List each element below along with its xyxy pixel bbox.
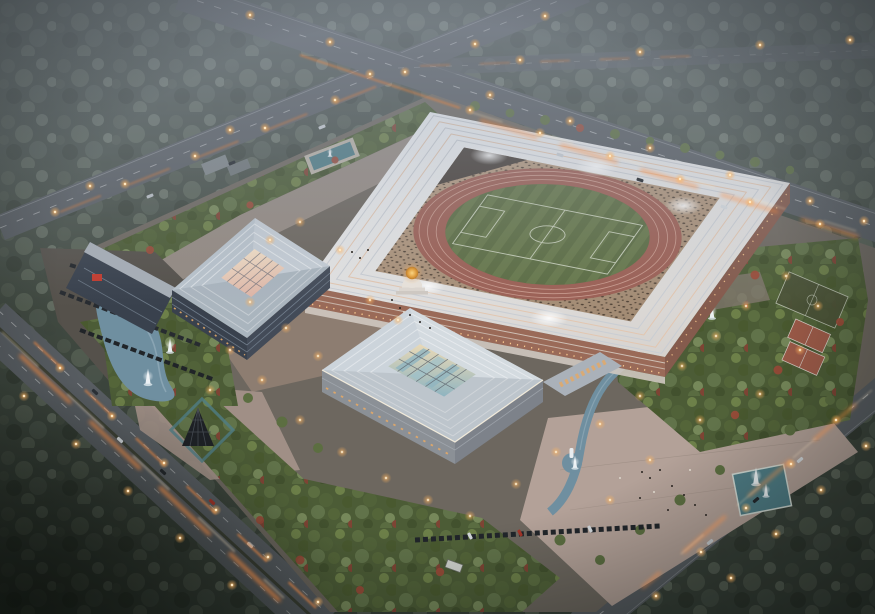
rendering-stage: Aerial dusk rendering of a sports comple… [0,0,875,614]
aerial-rendering [0,0,875,614]
